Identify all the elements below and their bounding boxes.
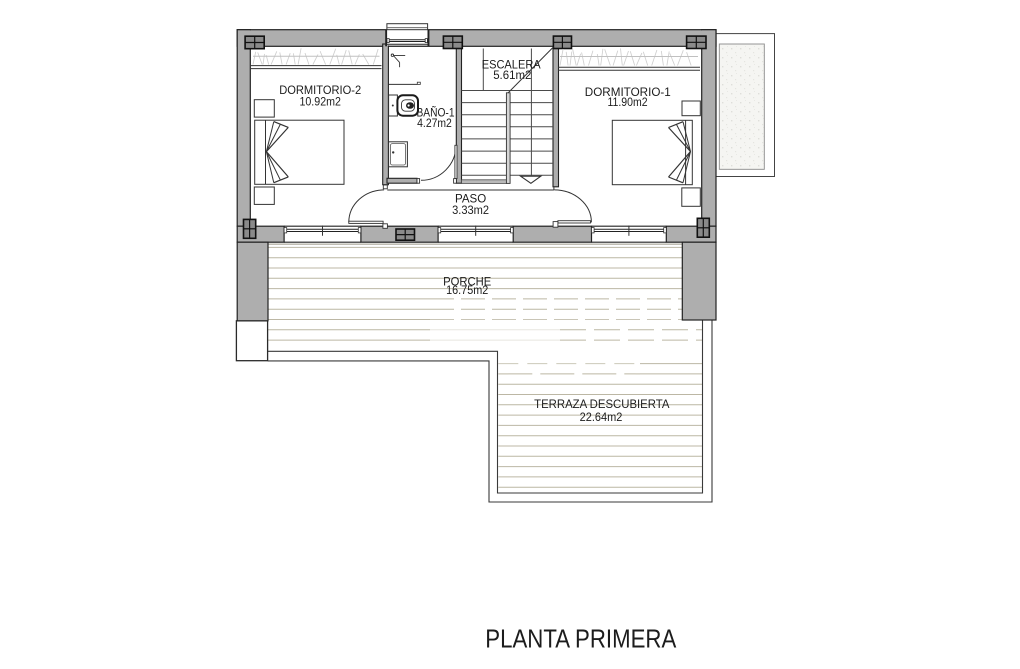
- svg-text:4.27m2: 4.27m2: [417, 118, 452, 130]
- svg-text:TERRAZA DESCUBIERTA: TERRAZA DESCUBIERTA: [534, 399, 670, 411]
- svg-text:3.33m2: 3.33m2: [452, 205, 489, 217]
- svg-text:16.75m2: 16.75m2: [446, 285, 488, 297]
- svg-text:PASO: PASO: [455, 194, 486, 206]
- svg-text:11.90m2: 11.90m2: [607, 97, 647, 109]
- svg-text:5.61m2: 5.61m2: [493, 70, 531, 82]
- svg-text:PLANTA PRIMERA: PLANTA PRIMERA: [485, 624, 677, 654]
- svg-text:22.64m2: 22.64m2: [580, 412, 623, 424]
- svg-text:10.92m2: 10.92m2: [299, 96, 341, 108]
